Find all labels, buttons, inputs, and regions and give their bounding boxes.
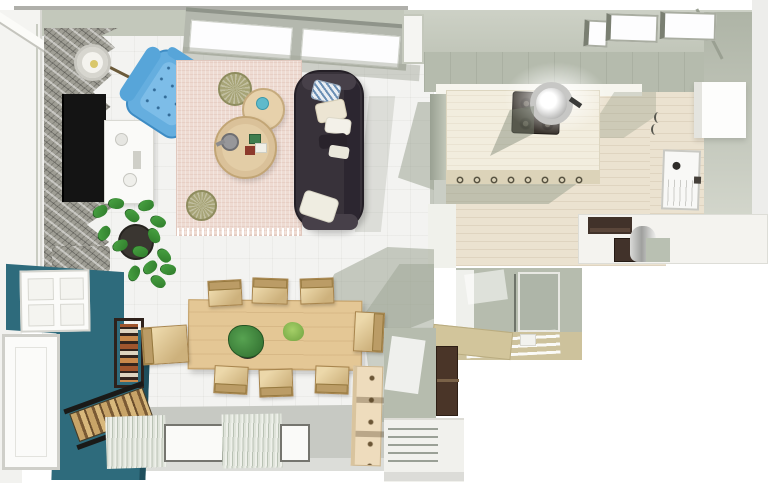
door-inner-frame [15, 347, 47, 457]
chair-backrest [301, 278, 333, 288]
chair-backrest [214, 383, 246, 394]
chair-backrest [260, 386, 292, 396]
wall-panel [402, 14, 424, 64]
door-panel [60, 277, 84, 299]
sage-cabinet [646, 238, 670, 262]
door-peephole [672, 162, 680, 170]
tv-screen [62, 94, 106, 202]
right-outer-wall [752, 0, 768, 240]
bath-door-edge [514, 274, 516, 332]
curtain-bunch [222, 413, 283, 468]
shelf-notch [356, 397, 386, 404]
chair-backrest [253, 278, 287, 288]
red-box [245, 146, 255, 155]
shelf-notch [355, 431, 385, 438]
dining-chair [252, 277, 289, 304]
curtain-bunch [105, 415, 167, 469]
pouf [186, 190, 217, 221]
dining-chair [141, 324, 190, 365]
cabinet-shelf-line [437, 379, 459, 382]
rug-fringe [177, 228, 301, 236]
bottom-window [164, 424, 224, 462]
door-handle [694, 176, 701, 183]
floor-lamp-shade [74, 44, 111, 81]
peg-shelf [351, 366, 384, 467]
kitchen-door [661, 149, 701, 210]
console-dish [123, 173, 137, 187]
skylight [606, 13, 659, 43]
utility-cabinet-dark [436, 346, 458, 416]
blue-cup [256, 97, 269, 110]
chair-backrest [142, 328, 154, 365]
open-door [2, 334, 60, 470]
paneled-door [19, 269, 90, 332]
white-box [255, 143, 267, 153]
chair-backrest [208, 280, 240, 291]
steel-pot [530, 82, 573, 125]
door-panel [28, 278, 54, 300]
wall-hook [654, 112, 663, 123]
left-wall-line [36, 24, 38, 272]
utility-base-unit [384, 418, 464, 482]
microwave [588, 217, 632, 234]
base-vents [388, 428, 438, 462]
dining-chair [300, 277, 335, 304]
bath-door [518, 272, 560, 332]
skylight [660, 11, 717, 40]
table-plant [228, 325, 264, 358]
dining-table [188, 299, 363, 371]
table-plant-small [283, 322, 304, 341]
stool-scrollwork [452, 174, 586, 187]
door-panel [60, 303, 84, 325]
wall-cabinet [694, 82, 746, 138]
dining-chair [353, 311, 385, 353]
chair-backrest [316, 383, 348, 393]
chair-backrest [372, 313, 384, 351]
microwave-front [590, 228, 630, 232]
console-dish [115, 133, 128, 146]
dining-chair [207, 279, 242, 307]
wall-hook [651, 124, 660, 135]
dining-chair [315, 365, 350, 394]
console-decor [133, 151, 141, 169]
door-slats [667, 180, 696, 207]
bath-light-wedge [464, 269, 508, 304]
media-console [104, 120, 154, 204]
dining-chair [213, 365, 248, 395]
door-panel [28, 304, 54, 326]
bath-box [520, 334, 536, 346]
base-edge [384, 472, 464, 481]
lamp-bulb [90, 60, 98, 68]
floorplan-render [0, 0, 768, 483]
bottom-window [280, 424, 310, 462]
dining-chair [259, 368, 294, 397]
